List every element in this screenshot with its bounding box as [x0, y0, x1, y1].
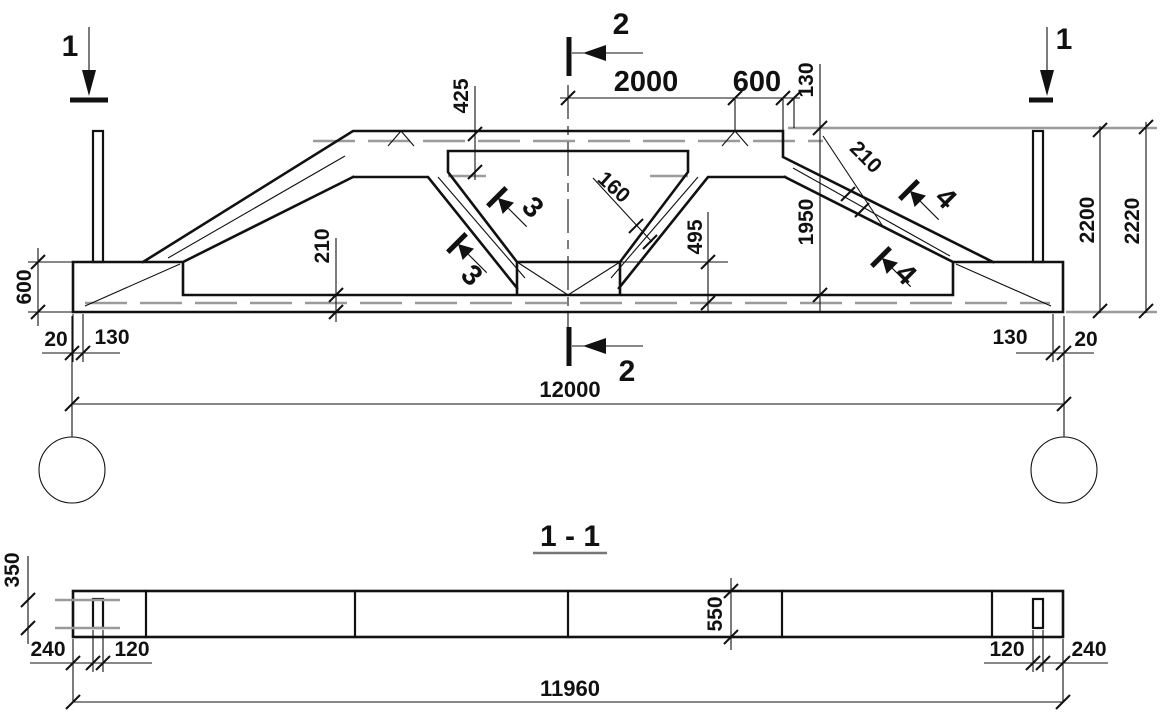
- dim-210-right: 210: [845, 137, 886, 178]
- dim-160: 160: [593, 167, 634, 208]
- dim-20-left: 20: [44, 328, 67, 351]
- left-hole: [93, 599, 103, 628]
- dim-1950: 1950: [795, 199, 818, 246]
- section-view: 1 - 1 350 240 120 120 240 550: [1, 520, 1108, 709]
- section-title: 1 - 1: [540, 520, 600, 553]
- elevation-view: 2000 600 130 425 160 495 210 1950 2200 2…: [13, 8, 1157, 503]
- dim-120-right: 120: [989, 638, 1024, 661]
- dim-12000: 12000: [539, 377, 600, 402]
- dim-240-left: 240: [30, 638, 65, 661]
- dim-11960: 11960: [540, 676, 600, 701]
- dim-130-top: 130: [795, 62, 818, 97]
- dim-2220: 2220: [1121, 198, 1144, 245]
- dim-120-left: 120: [114, 638, 149, 661]
- section-marker-1-right-label: 1: [1056, 23, 1073, 56]
- right-post: [1033, 131, 1043, 262]
- grid-bubble-right: [1031, 437, 1097, 503]
- section-marker-1-left: 1: [62, 27, 108, 100]
- section-marker-2-top-label: 2: [613, 8, 630, 41]
- dim-600-top: 600: [733, 66, 781, 98]
- dim-425: 425: [450, 78, 473, 113]
- section-marker-2-bottom-label: 2: [619, 355, 636, 388]
- section-flag-3-lower-label: 3: [454, 259, 488, 293]
- dim-600-left: 600: [13, 269, 36, 304]
- truss-drawing-canvas: 2000 600 130 425 160 495 210 1950 2200 2…: [0, 0, 1161, 718]
- section-marker-1-left-label: 1: [62, 30, 79, 63]
- dim-2200: 2200: [1076, 197, 1099, 244]
- grid-bubble-left: [39, 437, 105, 503]
- dim-210-left: 210: [311, 228, 334, 263]
- dim-550: 550: [704, 596, 727, 631]
- dim-130-right: 130: [992, 326, 1027, 349]
- section-marker-1-right: 1: [1029, 23, 1072, 100]
- right-hole: [1033, 599, 1043, 628]
- dim-20-right: 20: [1074, 328, 1097, 351]
- section-flag-3-upper-label: 3: [515, 191, 549, 225]
- drawing-page: 2000 600 130 425 160 495 210 1950 2200 2…: [0, 0, 1161, 718]
- dim-240-right: 240: [1071, 638, 1106, 661]
- left-post: [93, 131, 103, 262]
- dim-495: 495: [684, 219, 707, 254]
- beam-joints: [146, 591, 992, 637]
- dim-130-left: 130: [94, 326, 129, 349]
- dim-350: 350: [1, 552, 24, 587]
- dim-2000: 2000: [614, 66, 679, 98]
- section-flag-4-upper-label: 4: [928, 182, 962, 216]
